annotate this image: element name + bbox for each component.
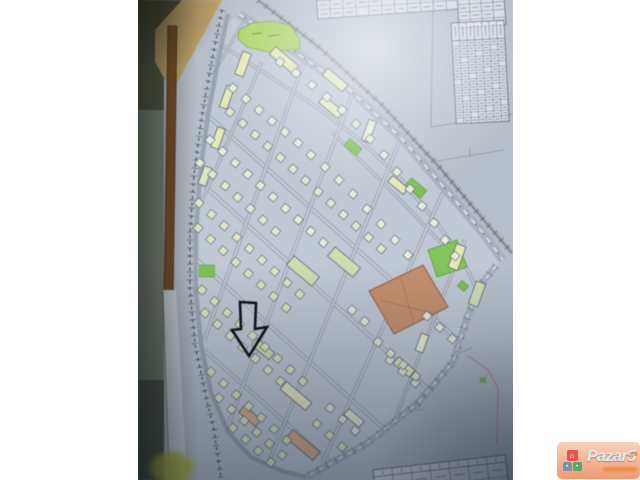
cell-text-smudge [398,8,405,9]
cell-text-smudge [333,13,340,14]
photo-page: ⌂ • • Pazar5 .mk [0,0,640,480]
paper-fold-line [431,0,433,127]
park-area [238,21,300,52]
cell-text-smudge [320,5,327,6]
site-plan-photo [138,0,513,480]
header-text-smudge [485,25,486,36]
dimension-line [437,150,504,161]
table-frame [451,20,509,124]
survey-line-pink [468,356,498,444]
watermark-logo: ⌂ • • [560,450,584,471]
logo-tile-icon: • [573,462,582,471]
watermark-tagline-blur [603,467,637,472]
cell-text-smudge [436,6,443,7]
site-plan-map [138,0,513,480]
cell-text-smudge [346,12,353,13]
schedule-table-top [316,0,460,19]
cell-text-smudge [358,2,365,3]
cell-text-smudge [333,4,340,5]
watermark-suffix: .mk [628,452,638,458]
cell-text-smudge [423,7,430,8]
watermark-pazar5: ⌂ • • Pazar5 .mk [557,442,640,479]
header-text-smudge [500,24,501,35]
green-patch [481,378,486,382]
cell-text-smudge [320,14,327,15]
logo-tile-icon: • [563,462,572,471]
legend-table-bottom [373,455,509,480]
header-text-smudge [478,25,479,36]
header-text-smudge [470,26,471,37]
balance-table-right [451,20,509,124]
house-icon: ⌂ [567,450,578,461]
cell-text-smudge [372,10,379,11]
folded-paper-edge [163,290,187,478]
header-text-smudge [493,24,494,35]
green-patch [200,265,215,277]
header-text-smudge [463,26,464,37]
cell-text-smudge [346,3,353,4]
header-text-smudge [455,26,456,37]
cell-text-smudge [411,7,418,8]
cell-text-smudge [385,9,392,10]
cell-text-smudge [371,1,378,2]
